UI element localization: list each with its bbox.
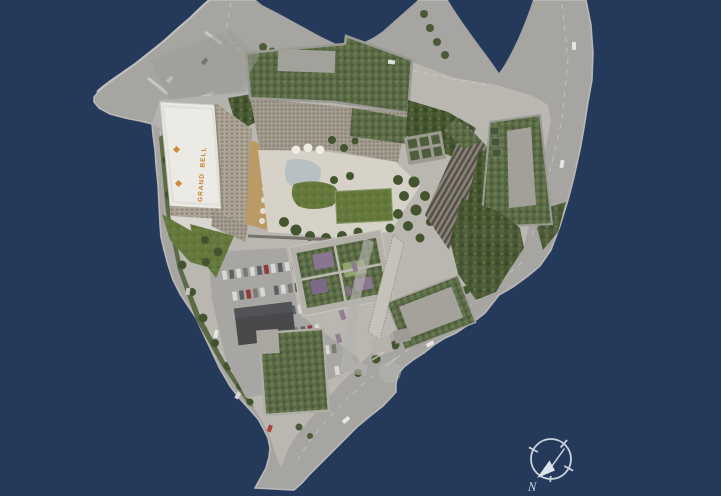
svg-text:N: N (527, 480, 537, 494)
